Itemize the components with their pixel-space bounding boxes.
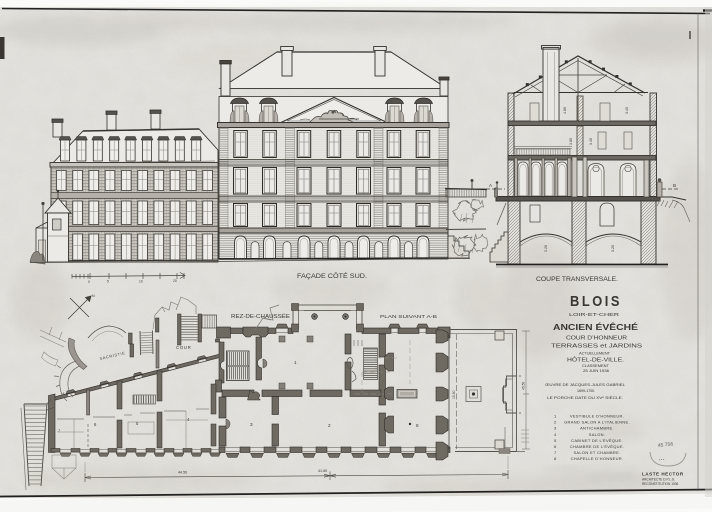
svg-text:1: 1 (294, 360, 297, 365)
svg-text:4.80: 4.80 (563, 107, 567, 114)
svg-text:45.50: 45.50 (522, 382, 526, 390)
svg-text:COUR: COUR (176, 345, 192, 350)
svg-text:CHAMBRE DE L’ÉVÊQUE.: CHAMBRE DE L’ÉVÊQUE. (570, 444, 624, 449)
svg-text:VESTIBULE D’HONNEUR.: VESTIBULE D’HONNEUR. (570, 414, 624, 419)
svg-text:GRAND SALON A L’ITALIENNE.: GRAND SALON A L’ITALIENNE. (564, 420, 630, 425)
svg-text:2: 2 (328, 423, 331, 428)
svg-text:44.50: 44.50 (178, 471, 187, 475)
svg-text:FAÇADE CÔTÉ SUD.: FAÇADE CÔTÉ SUD. (297, 273, 367, 280)
svg-text:B: B (673, 183, 676, 188)
svg-text:7: 7 (58, 429, 60, 433)
svg-text:CABINET DE L’ÉVÊQUE.: CABINET DE L’ÉVÊQUE. (571, 438, 623, 443)
svg-text:LOIR-ET-CHER: LOIR-ET-CHER (569, 312, 619, 317)
svg-text:LASTE HECTOR: LASTE HECTOR (642, 472, 684, 477)
svg-text:3.40: 3.40 (589, 138, 593, 145)
svg-text:TERRASSES et JARDINS: TERRASSES et JARDINS (551, 344, 642, 350)
svg-text:1699-1700.: 1699-1700. (577, 389, 595, 393)
svg-text:N: N (92, 294, 95, 298)
svg-text:25 JUIN 1936: 25 JUIN 1936 (583, 369, 609, 373)
svg-text:CLASSEMENT: CLASSEMENT (582, 364, 609, 368)
svg-text:CHAPELLE D’HONNEUR.: CHAPELLE D’HONNEUR. (571, 456, 624, 461)
svg-text:ARCHITECTE D.P.L.G.: ARCHITECTE D.P.L.G. (642, 478, 675, 482)
svg-text:3.80: 3.80 (569, 138, 573, 145)
svg-text:PLAN SUIVANT A-B: PLAN SUIVANT A-B (380, 314, 437, 319)
svg-text:15.50: 15.50 (452, 390, 456, 399)
svg-text:SALON.: SALON. (589, 432, 605, 437)
svg-text:0: 0 (88, 280, 90, 284)
svg-text:COUR D’HONNEUR: COUR D’HONNEUR (566, 336, 627, 342)
svg-text:10: 10 (139, 279, 143, 283)
svg-text:3: 3 (250, 422, 253, 427)
svg-text:COUPE TRANSVERSALE.: COUPE TRANSVERSALE. (536, 277, 618, 283)
svg-text:RECONSTITUTION 1936: RECONSTITUTION 1936 (642, 482, 679, 486)
svg-text:ANCIEN ÉVÊCHÉ: ANCIEN ÉVÊCHÉ (553, 321, 639, 332)
svg-text:ACTUELLEMENT: ACTUELLEMENT (579, 352, 610, 356)
svg-text:3.20: 3.20 (611, 245, 615, 252)
svg-text:SALON ET CHAMBRE.: SALON ET CHAMBRE. (573, 450, 620, 455)
svg-text:20: 20 (173, 279, 177, 283)
svg-text:BLOIS: BLOIS (570, 293, 622, 310)
svg-text:LE PORCHE DATE DU XVᵉ SIÈCLE.: LE PORCHE DATE DU XVᵉ SIÈCLE. (547, 395, 623, 400)
svg-text:REZ-DE-CHAUSSÉE: REZ-DE-CHAUSSÉE (231, 313, 291, 320)
svg-text:ŒUVRE DE JACQUES-JULES GABRIEL: ŒUVRE DE JACQUES-JULES GABRIEL (545, 383, 625, 387)
svg-text:ANTICHAMBRE.: ANTICHAMBRE. (580, 426, 614, 431)
svg-text:3.20: 3.20 (544, 245, 548, 252)
svg-text:5: 5 (107, 280, 109, 284)
svg-text:8: 8 (416, 423, 419, 428)
svg-text:3.40: 3.40 (625, 107, 629, 114)
svg-text:HÔTEL-DE-VILLE.: HÔTEL-DE-VILLE. (567, 357, 624, 364)
svg-text:41.60: 41.60 (318, 469, 327, 473)
